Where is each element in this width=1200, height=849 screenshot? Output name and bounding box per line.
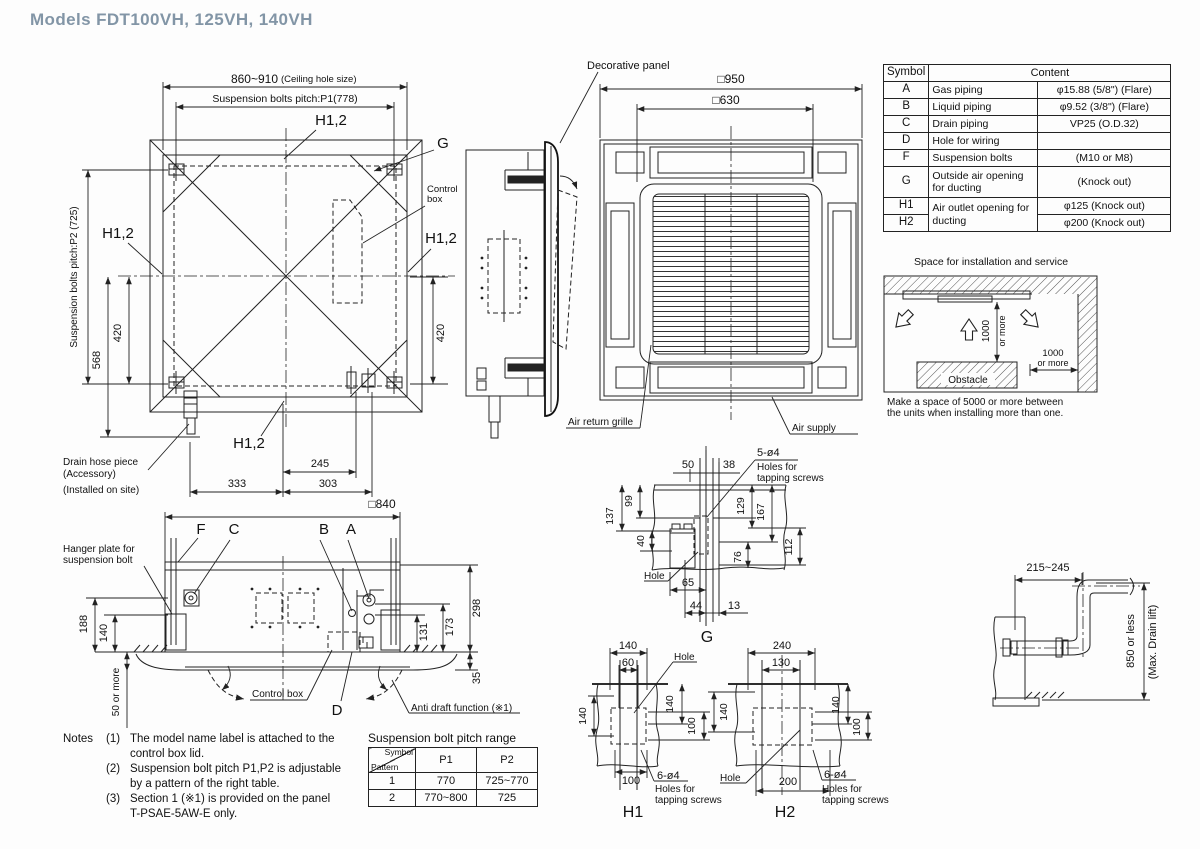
note-text: Suspension bolt pitch P1,P2 is adjustabl… (130, 762, 341, 792)
cell-value: φ125 (Knock out) (1038, 198, 1171, 215)
gdet-screws-2: Holes for (757, 462, 798, 473)
header-p1: P1 (416, 748, 477, 773)
cell-p1: 770 (416, 773, 477, 790)
label-control-box-side: Control box (252, 689, 303, 700)
gdet-dim-65: 65 (682, 577, 694, 589)
h1-detail: 140 60 Hole 140 100 140 100 6-ø4 Holes f… (577, 640, 722, 821)
install-note-1: Make a space of 5000 or more between (887, 397, 1063, 408)
label-air-return-grille: Air return grille (568, 417, 633, 428)
drain-lift-2: (Max. Drain lift) (1147, 605, 1159, 680)
gdet-dim-40: 40 (635, 535, 647, 547)
note-number: (2) (106, 762, 130, 792)
label-drain-hose-1: Drain hose piece (63, 457, 138, 468)
label-drain-hose-2: (Accessory) (63, 469, 116, 480)
gdet-screws-3: tapping screws (757, 473, 824, 484)
cell-name: Gas piping (929, 82, 1038, 99)
cell-symbol: G (884, 167, 929, 198)
table-row: AGas pipingφ15.88 (5/8") (Flare) (884, 82, 1171, 99)
gdet-dim-137: 137 (604, 507, 616, 525)
h1-hole: Hole (674, 652, 695, 663)
table-row: BLiquid pipingφ9.52 (3/8") (Flare) (884, 99, 1171, 116)
cell-value: (Knock out) (1038, 167, 1171, 198)
dim-568: 568 (91, 351, 103, 369)
table-header-row: Symbol Pattern P1 P2 (369, 748, 538, 773)
cell-name: Liquid piping (929, 99, 1038, 116)
note-item: (2) Suspension bolt pitch P1,P2 is adjus… (63, 762, 341, 792)
note-text: Section 1 (※1) is provided on the panel … (130, 792, 330, 822)
label-hanger-1: Hanger plate for (63, 544, 135, 555)
cell-symbol: A (884, 82, 929, 99)
gdet-hole: Hole (644, 571, 665, 582)
h1-label: H1 (623, 804, 644, 821)
h2-dim-200: 200 (779, 776, 797, 788)
table-row: H1Air outlet opening for ductingφ125 (Kn… (884, 198, 1171, 215)
note-text: The model name label is attached to the … (130, 732, 335, 762)
h1-dim-100b: 100 (622, 775, 640, 787)
dim-173: 173 (444, 618, 456, 636)
label-air-supply: Air supply (792, 423, 836, 434)
h2-dim-100r: 100 (851, 718, 863, 736)
gdet-dim-44: 44 (690, 600, 702, 612)
pitch-range-table: Suspension bolt pitch range Symbol Patte… (368, 731, 538, 807)
cell-p1: 770~800 (416, 790, 477, 807)
table-row: GOutside air opening for ducting(Knock o… (884, 167, 1171, 198)
h2-screws-2: Holes for (822, 784, 863, 795)
return-grille-louvers (653, 194, 809, 354)
label-hanger-2: suspension bolt (63, 555, 133, 566)
label-h12-left: H1,2 (102, 225, 134, 242)
label-d: D (332, 702, 343, 719)
dim-1000-vert: 1000 (981, 319, 992, 342)
table-row: CDrain pipingVP25 (O.D.32) (884, 116, 1171, 133)
cell-name: Hole for wiring (929, 133, 1038, 150)
panel-front-view: Decorative panel □950 □630 Air return gr… (566, 60, 862, 434)
cell-pattern: 2 (369, 790, 416, 807)
note-item: Notes (1) The model name label is attach… (63, 732, 341, 762)
header-symbol: Symbol (385, 748, 413, 757)
h2-dim-140r: 140 (830, 696, 842, 714)
h1-dim-140r: 140 (664, 695, 676, 713)
note-number: (3) (106, 792, 130, 822)
hanger-bracket-top (505, 152, 544, 190)
h1-screws-3: tapping screws (655, 795, 722, 806)
note-line: Section 1 (※1) is provided on the panel (130, 792, 330, 807)
table-header-row: Symbol Content (884, 65, 1171, 82)
dim-50-or-more: 50 or more (111, 667, 122, 716)
side-view (466, 72, 598, 438)
dim-950: □950 (717, 72, 745, 86)
label-anti-draft: Anti draft function (※1) (411, 703, 512, 714)
cell-value: VP25 (O.D.32) (1038, 116, 1171, 133)
note-number: (1) (106, 732, 130, 762)
gdet-dim-99: 99 (623, 495, 635, 507)
cell-name: Outside air opening for ducting (929, 167, 1038, 198)
cell-name: Suspension bolts (929, 150, 1038, 167)
h2-dim-240: 240 (773, 640, 791, 652)
note-line: The model name label is attached to the (130, 732, 335, 747)
gdet-dim-13: 13 (728, 600, 740, 612)
header-pattern: Pattern (371, 763, 398, 772)
g-detail: 50 38 5-ø4 Holes for tapping screws 99 1… (604, 446, 824, 646)
col-content: Content (929, 65, 1171, 82)
note-line: control box lid. (130, 747, 335, 762)
cell-symbol: F (884, 150, 929, 167)
diagonal-header-cell: Symbol Pattern (369, 748, 416, 773)
h1-screws-2: Holes for (655, 784, 696, 795)
airflow-arrow-left (890, 307, 916, 333)
dim-p1: Suspension bolts pitch:P1(778) (212, 93, 357, 105)
dim-298: 298 (471, 599, 483, 617)
cell-name: Drain piping (929, 116, 1038, 133)
cell-symbol: H1 (884, 198, 929, 215)
dim-1000-horiz-note: or more (1037, 358, 1068, 368)
wall-hatch (1078, 294, 1097, 392)
cell-p2: 725 (477, 790, 538, 807)
dim-188: 188 (78, 615, 90, 633)
h2-dim-130: 130 (772, 657, 790, 669)
gdet-screws: 5-ø4 (757, 447, 780, 459)
label-drain-hose-3: (Installed on site) (63, 485, 139, 496)
table-row: 2 770~800 725 (369, 790, 538, 807)
dim-131: 131 (418, 623, 430, 641)
dim-303: 303 (319, 478, 337, 490)
dim-p2: Suspension bolts pitch:P2 (725) (69, 206, 80, 347)
dim-420-right: 420 (435, 324, 447, 342)
label-h12-bottom: H1,2 (233, 435, 265, 452)
dim-840: □840 (368, 497, 396, 511)
notes: Notes (1) The model name label is attach… (63, 732, 341, 822)
cell-value (1038, 133, 1171, 150)
h2-dim-140l: 140 (718, 703, 730, 721)
label-decorative-panel: Decorative panel (587, 60, 670, 72)
table-row: DHole for wiring (884, 133, 1171, 150)
h2-detail: 240 130 140 100 140 200 Hole 6-ø4 Holes … (708, 640, 889, 821)
cell-p2: 725~770 (477, 773, 538, 790)
control-box-outline (333, 200, 362, 303)
h2-screws-3: tapping screws (822, 795, 889, 806)
gdet-dim-38: 38 (723, 459, 735, 471)
installation-space-diagram: Space for installation and service 1000 … (884, 256, 1097, 419)
label-f: F (196, 521, 205, 538)
symbol-table: Symbol Content AGas pipingφ15.88 (5/8") … (883, 64, 1171, 232)
label-b: B (319, 521, 329, 538)
h2-screws: 6-ø4 (824, 769, 847, 781)
bottom-side-view: □840 F C B A Hanger plate for suspension… (63, 497, 520, 728)
dim-ceiling-hole: 860~910 (231, 72, 278, 86)
notes-label: Notes (63, 732, 106, 762)
h1-dim-140t: 140 (619, 640, 637, 652)
col-symbol: Symbol (884, 65, 929, 82)
gdet-dim-112: 112 (783, 538, 795, 555)
plan-view: 860~910 (Ceiling hole size) Suspension b… (63, 72, 458, 497)
label-obstacle: Obstacle (948, 375, 988, 386)
drain-dim-215-245: 215~245 (1026, 562, 1069, 574)
airflow-arrow-right (1018, 307, 1044, 333)
dim-1000-vert-note: or more (997, 315, 1007, 346)
h1-dim-140l: 140 (577, 707, 589, 725)
gdet-dim-167: 167 (755, 503, 767, 521)
h2-label: H2 (775, 804, 796, 821)
label-g: G (437, 135, 449, 152)
h1-screws: 6-ø4 (657, 770, 680, 782)
table-row: 1 770 725~770 (369, 773, 538, 790)
cell-pattern: 1 (369, 773, 416, 790)
drain-pipe-stub (477, 368, 500, 438)
pitch-table-title: Suspension bolt pitch range (368, 731, 538, 745)
note-item: (3) Section 1 (※1) is provided on the pa… (63, 792, 341, 822)
label-c: C (229, 521, 240, 538)
h1-dim-60: 60 (622, 657, 634, 669)
cell-value: (M10 or M8) (1038, 150, 1171, 167)
dim-420-left: 420 (112, 324, 124, 342)
h1-dim-100r: 100 (686, 717, 698, 735)
gdet-dim-76: 76 (732, 551, 744, 563)
cell-value: φ15.88 (5/8") (Flare) (1038, 82, 1171, 99)
gdet-dim-129: 129 (735, 497, 747, 515)
install-note-2: the units when installing more than one. (887, 408, 1063, 419)
dim-630: □630 (712, 93, 740, 107)
cell-value: φ200 (Knock out) (1038, 215, 1171, 232)
open-panel-flap (553, 190, 577, 349)
cell-value: φ9.52 (3/8") (Flare) (1038, 99, 1171, 116)
note-line: T-PSAE-5AW-E only. (130, 807, 330, 822)
hanger-bracket-bottom (505, 358, 544, 396)
cell-symbol: H2 (884, 215, 929, 232)
dim-333: 333 (228, 478, 246, 490)
knockout-hole-h1 (611, 708, 646, 744)
dim-35: 35 (471, 672, 483, 684)
cell-symbol: C (884, 116, 929, 133)
dim-245: 245 (311, 458, 329, 470)
gdet-label: G (701, 629, 713, 646)
control-box-outline-side (328, 632, 360, 652)
drain-lift-1: 850 or less (1125, 614, 1137, 668)
cell-symbol: B (884, 99, 929, 116)
label-control-box-2: box (427, 194, 443, 205)
label-h12-right: H1,2 (425, 230, 457, 247)
label-h12-top: H1,2 (315, 112, 347, 129)
cell-symbol: D (884, 133, 929, 150)
cell-name: Air outlet opening for ducting (929, 198, 1038, 232)
h2-hole: Hole (720, 773, 741, 784)
drawing-page: Models FDT100VH, 125VH, 140VH (0, 0, 1200, 849)
dim-140-side: 140 (98, 624, 110, 642)
label-a: A (346, 521, 356, 538)
note-line: by a pattern of the right table. (130, 777, 341, 792)
gdet-dim-50: 50 (682, 459, 694, 471)
install-title: Space for installation and service (914, 256, 1068, 268)
table-row: FSuspension bolts(M10 or M8) (884, 150, 1171, 167)
dim-ceiling-hole-note: (Ceiling hole size) (281, 74, 357, 85)
panel-section (136, 654, 457, 670)
header-p2: P2 (477, 748, 538, 773)
note-line: Suspension bolt pitch P1,P2 is adjustabl… (130, 762, 341, 777)
drain-lift-detail: 215~245 850 or less (Max. Drain lift) (993, 562, 1159, 706)
airflow-arrow-up (961, 319, 977, 340)
